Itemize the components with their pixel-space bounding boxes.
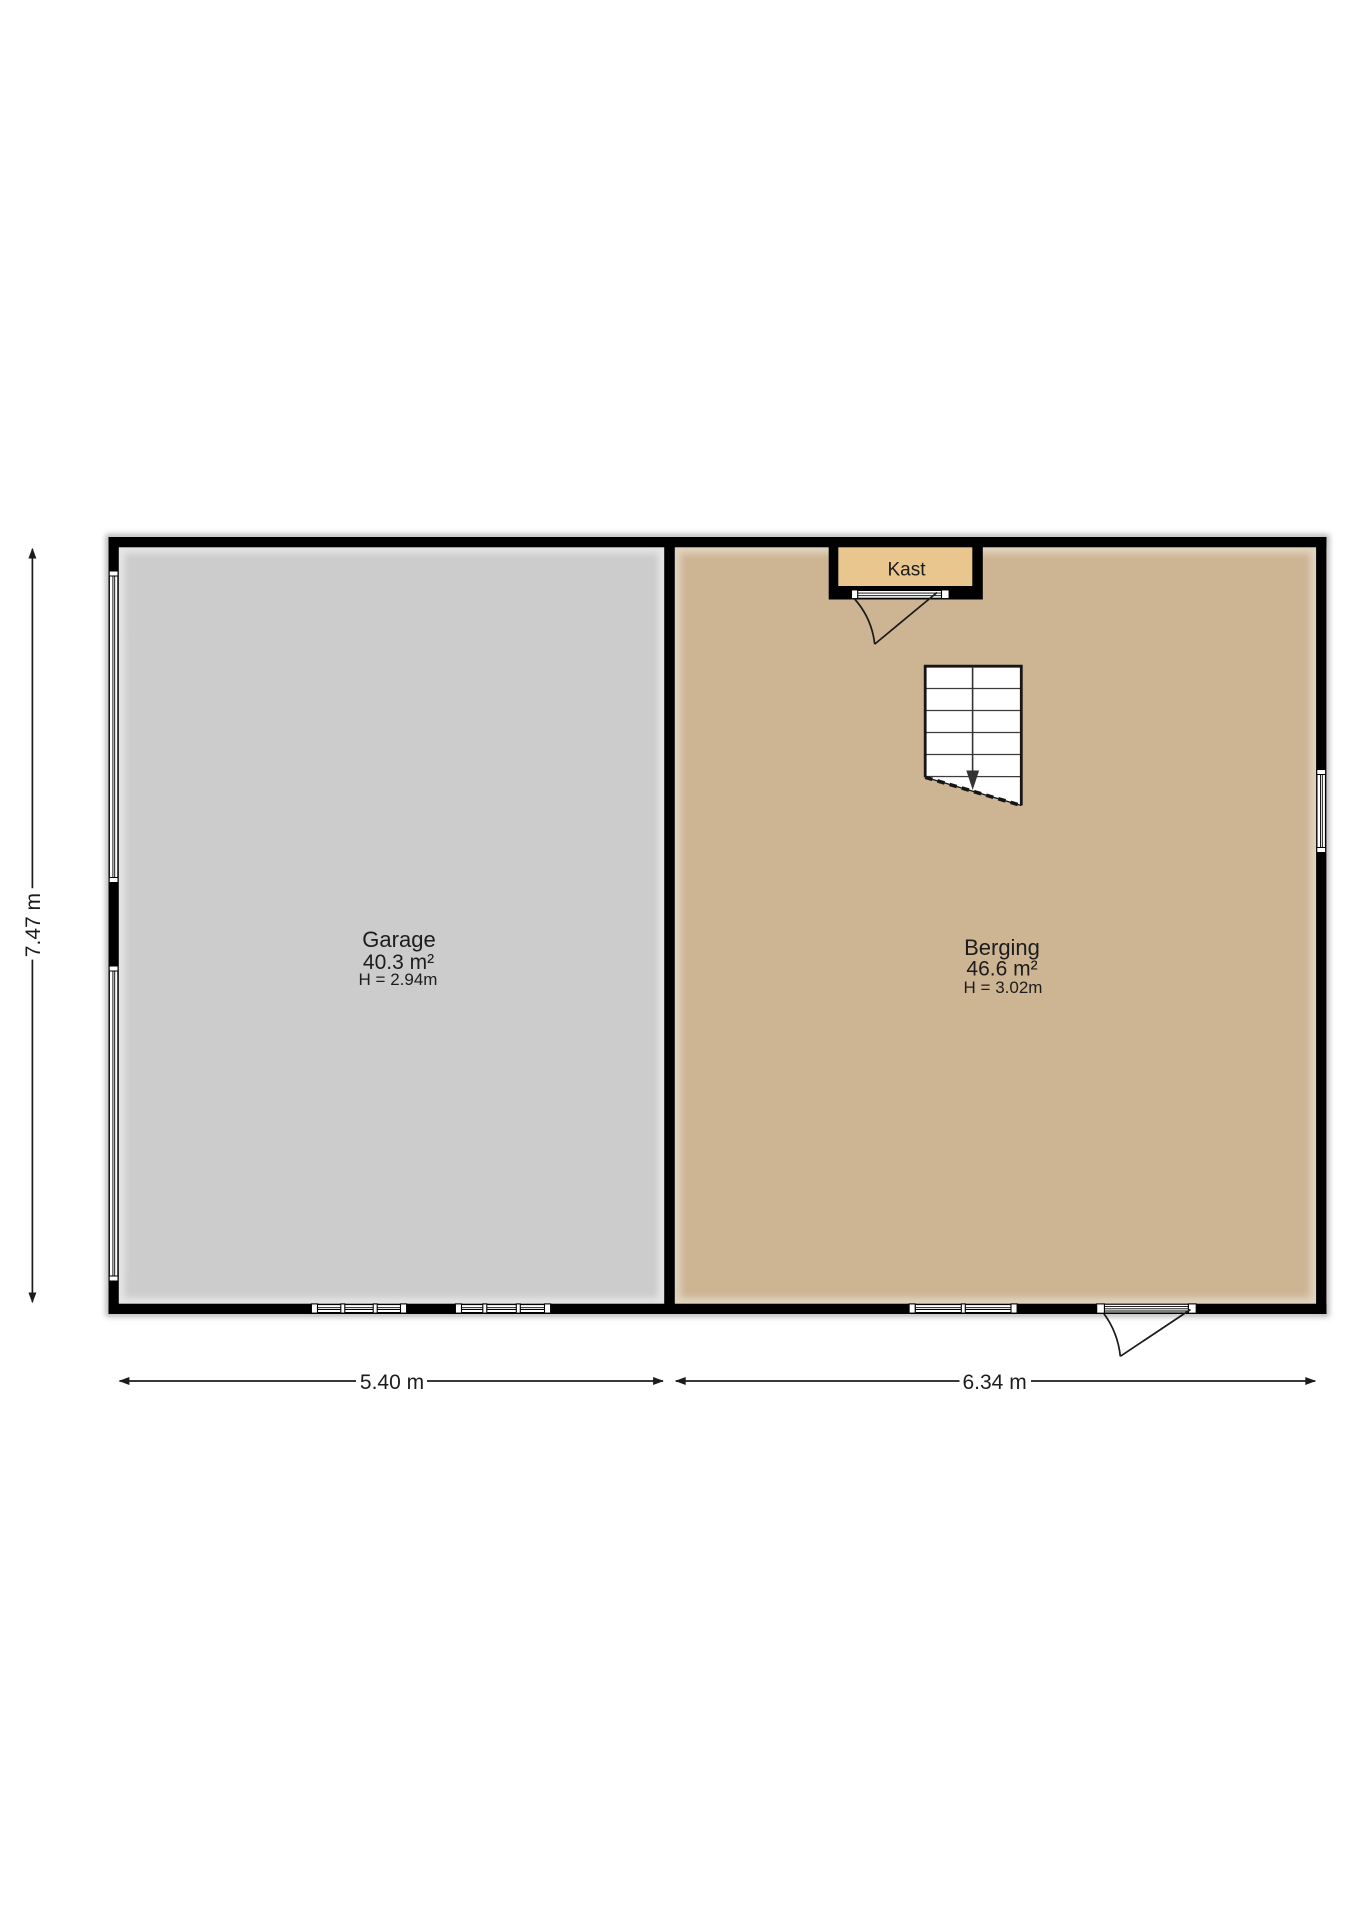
svg-text:H = 2.94m: H = 2.94m — [359, 970, 438, 989]
svg-text:H = 3.02m: H = 3.02m — [964, 978, 1043, 997]
svg-text:Berging: Berging — [964, 935, 1040, 960]
svg-text:Garage: Garage — [362, 927, 435, 952]
svg-text:Kast: Kast — [887, 560, 926, 581]
svg-text:7.47 m: 7.47 m — [22, 893, 45, 957]
svg-text:6.34 m: 6.34 m — [962, 1371, 1026, 1394]
svg-text:5.40 m: 5.40 m — [360, 1371, 424, 1394]
